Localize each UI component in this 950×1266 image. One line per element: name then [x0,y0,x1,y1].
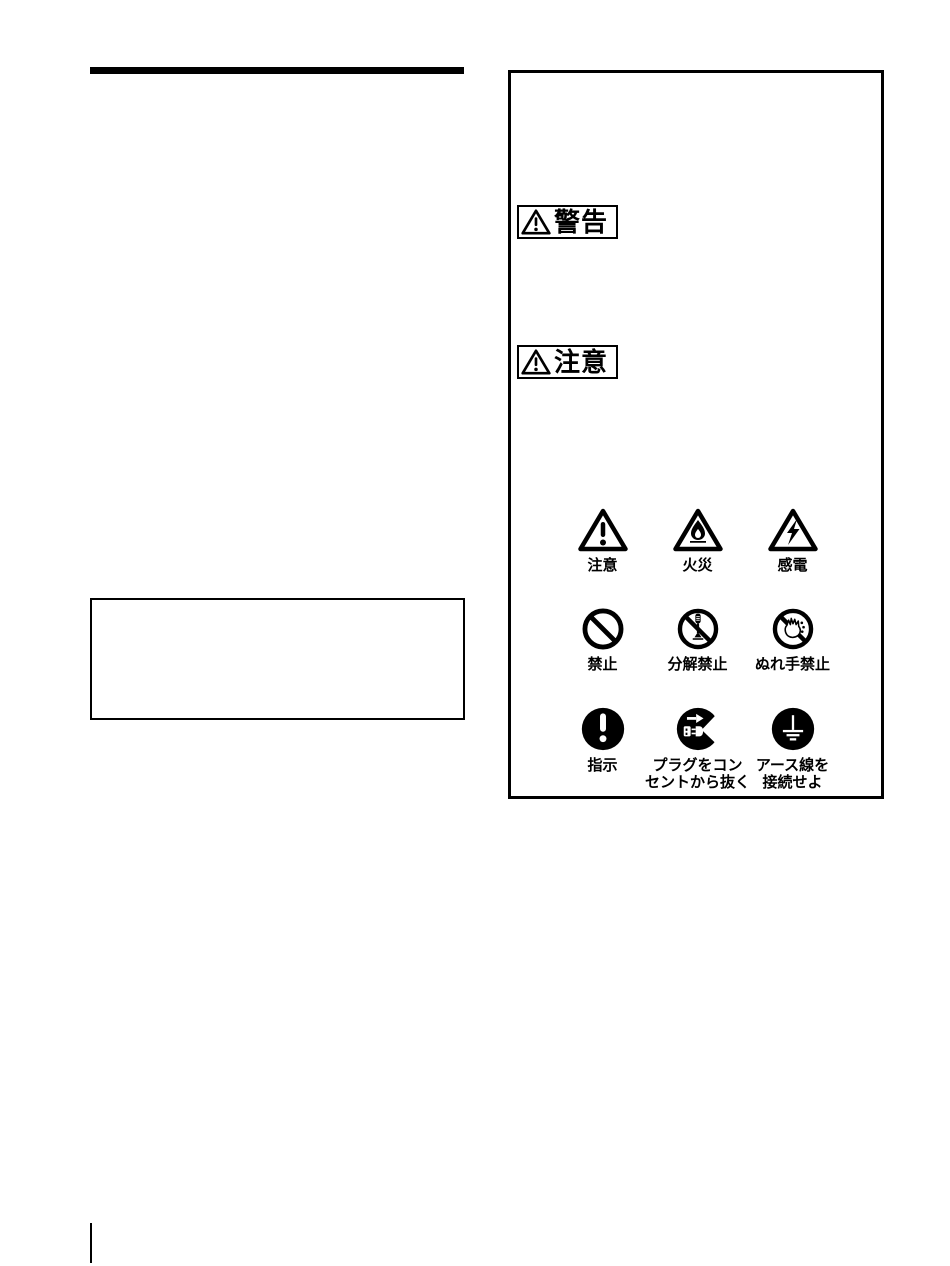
symbol-label: 感電 [777,557,807,574]
warning-triangle-icon [521,209,551,235]
symbol-unplug-from-outlet: プラグをコン セントから抜く [650,706,745,791]
symbol-label: 注意 [587,557,617,574]
no-disassembly-circle-icon [676,607,720,651]
unplug-circle-icon [675,706,721,752]
symbol-connect-ground-wire: アース線を 接続せよ [745,706,840,791]
symbol-disassembly-prohibited: 分解禁止 [650,607,745,673]
instruction-circle-icon [580,706,626,752]
safety-symbols-panel: 警告 注意 注意 [508,70,884,799]
symbol-label: 火災 [682,557,712,574]
symbol-instruction: 指示 [555,706,650,791]
caution-badge-label: 注意 [554,349,608,375]
caution-badge: 注意 [517,345,618,379]
caution-triangle-icon [578,505,628,552]
symbol-label: 禁止 [587,656,617,673]
binding-mark [90,1223,92,1263]
symbol-row-instructions: 指示 プラグをコン セントから抜く [555,706,840,791]
symbol-label: アース線を 接続せよ [756,757,829,791]
symbol-fire: 火災 [650,505,745,574]
symbol-caution: 注意 [555,505,650,574]
warning-badge-label: 警告 [554,209,608,235]
note-box [90,598,465,720]
ground-wire-circle-icon [770,706,816,752]
no-wet-hands-circle-icon [771,607,815,651]
symbol-row-prohibitions: 禁止 分解禁止 [555,607,840,673]
fire-triangle-icon [673,505,723,552]
caution-triangle-icon [521,349,551,375]
symbol-prohibited: 禁止 [555,607,650,673]
symbol-wet-hands-prohibited: ぬれ手禁止 [745,607,840,673]
symbol-label: 分解禁止 [667,656,727,673]
symbol-label: ぬれ手禁止 [755,656,830,673]
symbol-row-hazards: 注意 火災 感電 [555,505,840,574]
warning-badge: 警告 [517,205,618,239]
symbol-electric-shock: 感電 [745,505,840,574]
prohibited-circle-icon [581,607,625,651]
symbol-label: プラグをコン セントから抜く [645,757,750,791]
electric-shock-triangle-icon [768,505,818,552]
symbol-label: 指示 [587,757,617,774]
section-title-bar [90,67,464,74]
